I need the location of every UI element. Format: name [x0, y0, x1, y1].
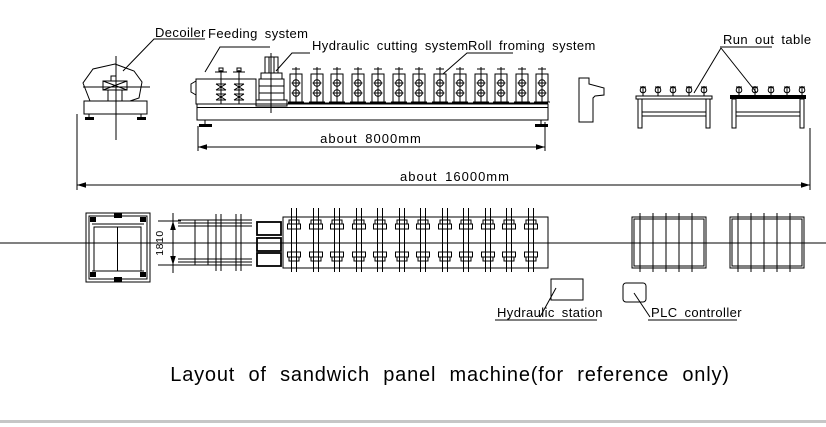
- label-decoiler: Decoiler: [155, 25, 206, 40]
- label-hydraulic-station: Hydraulic station: [497, 305, 603, 320]
- roll-forming-plan-view: [283, 208, 548, 272]
- run-out-table-1-side-view: [636, 86, 712, 128]
- run-out-table-2-side-view: [730, 86, 806, 128]
- plc-controller-box: [623, 283, 646, 302]
- label-roll-forming: Roll froming system: [468, 38, 596, 53]
- decoiler-plan-view: [86, 213, 150, 282]
- hydraulic-station-callout: Hydraulic station: [495, 279, 603, 320]
- bottom-divider: [0, 420, 826, 423]
- cad-drawing-canvas: Decoiler Feeding system Hydraulic cuttin…: [0, 0, 826, 427]
- dimension-16000: about 16000mm: [77, 114, 810, 190]
- machine-bed-side-view: [197, 104, 548, 127]
- label-plc-controller: PLC controller: [651, 305, 742, 320]
- chute-part-side-view: [579, 78, 604, 122]
- label-run-out-table: Run out table: [723, 32, 812, 47]
- leader-hydraulic-cutting: [276, 53, 310, 71]
- leader-decoiler: [123, 39, 205, 71]
- plc-controller-callout: PLC controller: [623, 283, 742, 320]
- callout-decoiler: Decoiler: [123, 25, 206, 71]
- hydraulic-station-box: [551, 279, 583, 300]
- dimension-8000: about 8000mm: [198, 122, 545, 151]
- cutting-system-plan-view: [257, 222, 281, 266]
- dimension-8000-text: about 8000mm: [320, 131, 422, 146]
- roll-forming-side-view: [288, 67, 550, 103]
- label-hydraulic-cutting: Hydraulic cutting system: [312, 38, 468, 53]
- plan-view: 1810: [0, 208, 826, 282]
- dimension-16000-text: about 16000mm: [400, 169, 510, 184]
- label-feeding-system: Feeding system: [208, 26, 308, 41]
- callout-hydraulic-cutting: Hydraulic cutting system: [276, 38, 468, 71]
- sandwich-panel-machine-layout-diagram: Decoiler Feeding system Hydraulic cuttin…: [0, 0, 826, 427]
- decoiler-side-view: [83, 56, 150, 140]
- drawing-caption: Layout of sandwich panel machine(for ref…: [170, 364, 729, 386]
- leaders-run-out-table: [694, 48, 756, 93]
- feeding-system-side-view: [191, 68, 256, 104]
- callout-feeding-system: Feeding system: [205, 26, 308, 72]
- callout-run-out-table: Run out table: [694, 32, 812, 93]
- leader-plc-controller: [634, 293, 650, 317]
- dimension-1810-text: 1810: [154, 230, 166, 255]
- leader-roll-forming: [443, 53, 513, 74]
